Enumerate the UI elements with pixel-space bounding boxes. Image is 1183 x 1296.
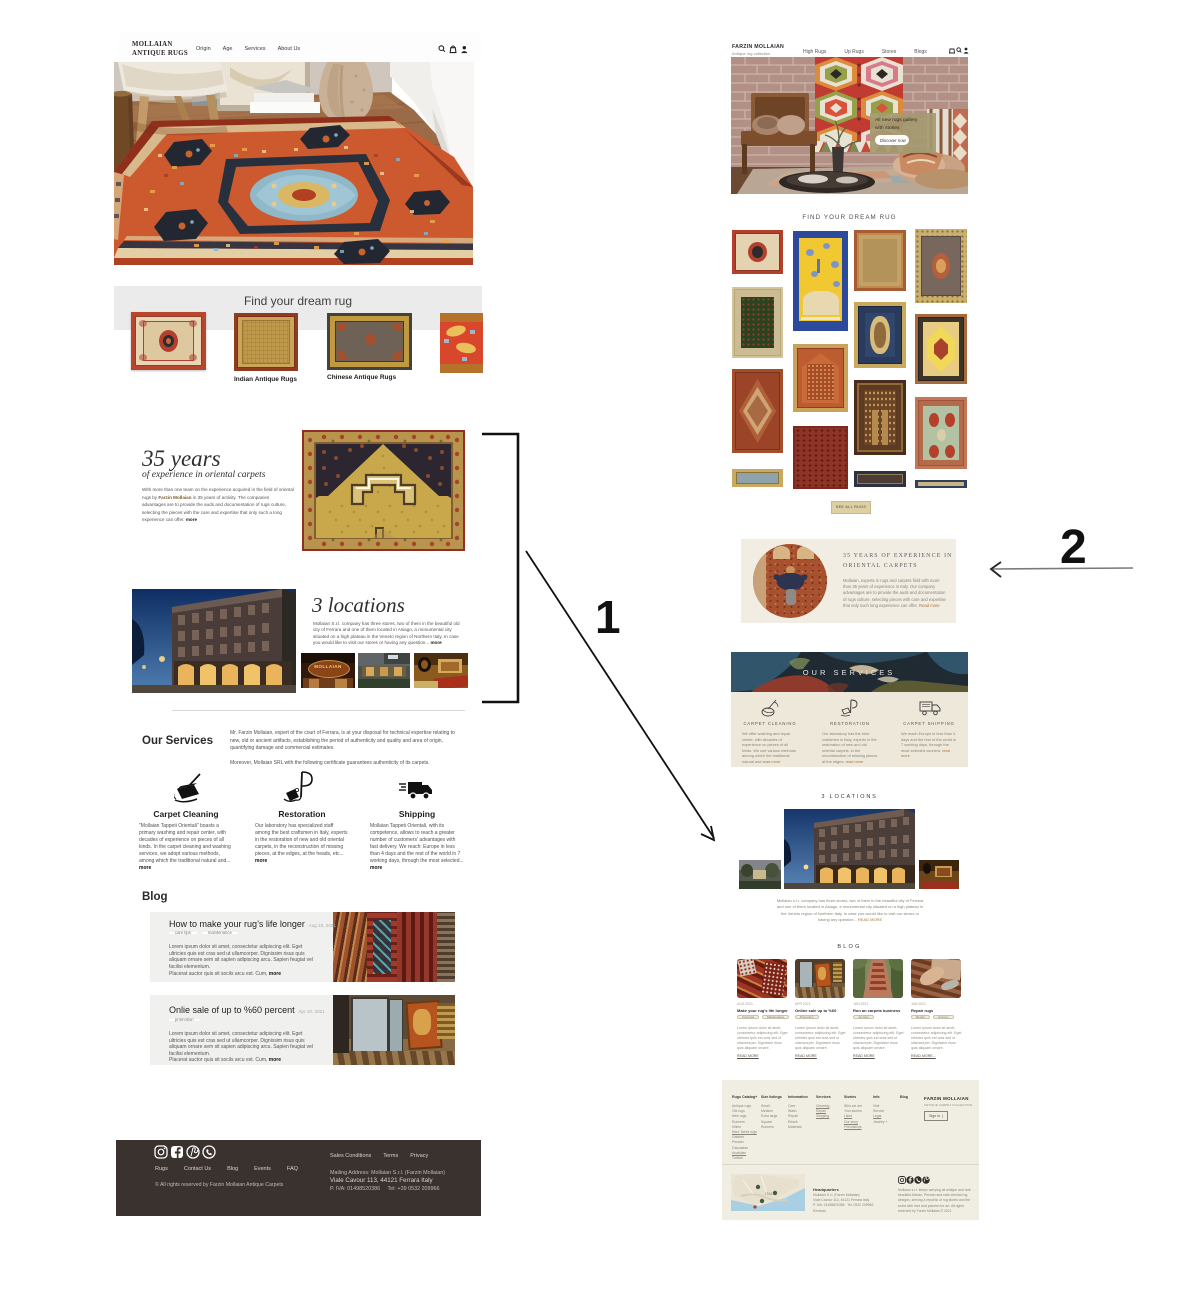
svg-text:1: 1	[595, 591, 621, 643]
svg-text:Discover now: Discover now	[880, 138, 907, 143]
svg-text:All new rugs gallery: All new rugs gallery	[875, 117, 918, 123]
svg-text:with stories: with stories	[875, 125, 900, 131]
svg-text:OUR SERVICES: OUR SERVICES	[803, 668, 896, 677]
svg-text:2: 2	[1060, 521, 1087, 574]
